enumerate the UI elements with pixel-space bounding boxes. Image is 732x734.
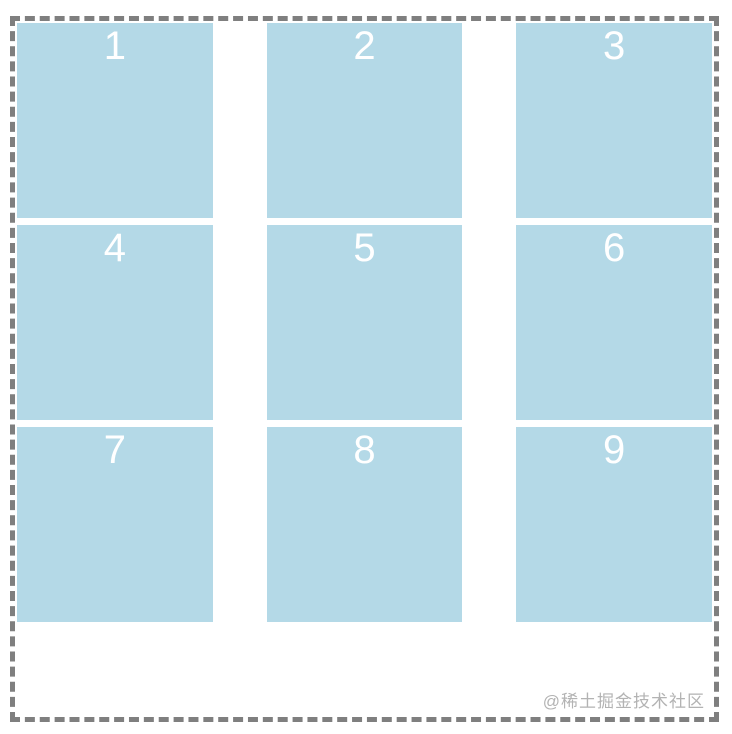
grid-item-1: 1 — [17, 23, 213, 218]
grid-item-8: 8 — [267, 427, 463, 622]
grid-item-number: 3 — [603, 24, 625, 68]
grid-item-number: 4 — [104, 226, 126, 270]
grid-item-2: 2 — [267, 23, 463, 218]
grid-item-number: 8 — [353, 428, 375, 472]
grid-item-number: 6 — [603, 226, 625, 270]
grid-item-4: 4 — [17, 225, 213, 420]
grid-item-9: 9 — [516, 427, 712, 622]
grid-item-3: 3 — [516, 23, 712, 218]
grid-item-number: 9 — [603, 428, 625, 472]
grid-item-number: 1 — [104, 24, 126, 68]
grid-item-5: 5 — [267, 225, 463, 420]
grid-item-number: 5 — [353, 226, 375, 270]
three-column-grid: 1 2 3 4 5 6 7 8 9 — [17, 23, 712, 622]
grid-item-7: 7 — [17, 427, 213, 622]
dashed-demo-container: 1 2 3 4 5 6 7 8 9 @稀土掘金技术社区 — [10, 16, 719, 722]
grid-item-number: 2 — [353, 24, 375, 68]
watermark: @稀土掘金技术社区 — [543, 687, 705, 712]
grid-item-6: 6 — [516, 225, 712, 420]
grid-item-number: 7 — [104, 428, 126, 472]
